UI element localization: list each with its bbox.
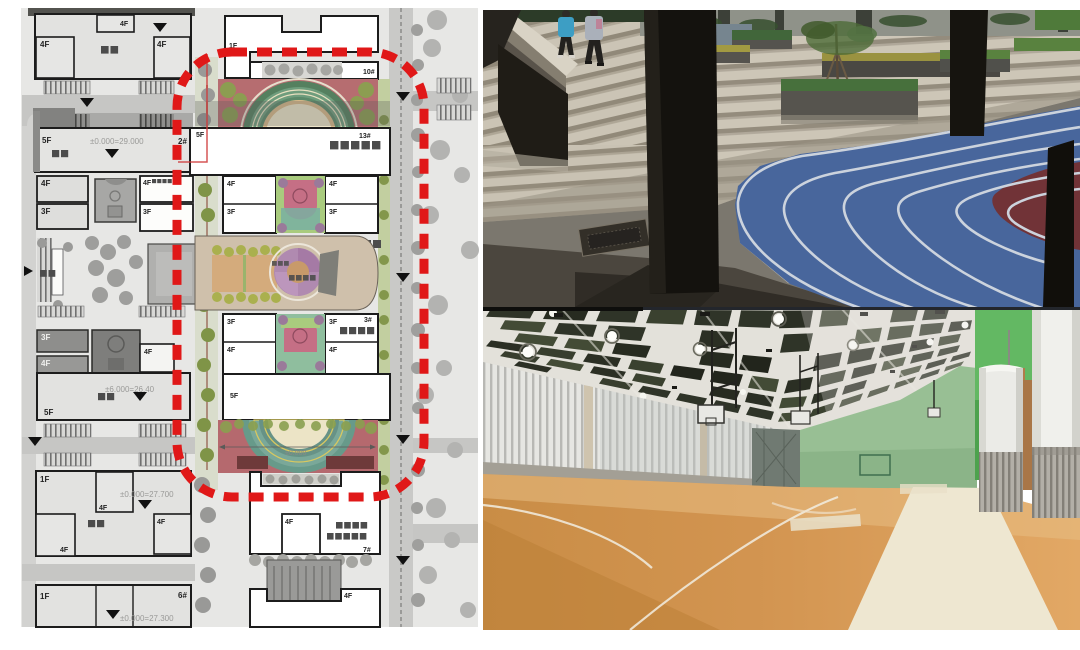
svg-text:±6.000=26.40: ±6.000=26.40 [105, 385, 155, 394]
svg-text:3F: 3F [41, 207, 50, 216]
svg-text:±0.000=27.300: ±0.000=27.300 [120, 614, 174, 623]
svg-text:5F: 5F [44, 408, 53, 417]
svg-text:4F: 4F [99, 505, 108, 512]
svg-text:4F: 4F [344, 593, 353, 600]
svg-text:4F: 4F [40, 40, 49, 49]
svg-text:4F: 4F [157, 40, 166, 49]
svg-text:±0.000: ±0.000 [285, 450, 306, 457]
svg-text:4F: 4F [285, 519, 294, 526]
svg-text:1F: 1F [40, 592, 49, 601]
svg-text:3F: 3F [329, 319, 338, 326]
svg-text:4F: 4F [41, 359, 50, 368]
svg-text:5F: 5F [42, 136, 51, 145]
svg-text:4F: 4F [329, 347, 338, 354]
svg-text:4F: 4F [143, 180, 152, 187]
svg-text:2#: 2# [178, 137, 187, 146]
svg-text:5F: 5F [196, 132, 205, 139]
svg-text:13#: 13# [359, 133, 371, 140]
svg-text:4F: 4F [120, 21, 129, 28]
svg-text:4F: 4F [157, 519, 166, 526]
svg-text:1F: 1F [40, 475, 49, 484]
svg-text:3#: 3# [364, 317, 372, 324]
svg-text:3F: 3F [227, 319, 236, 326]
svg-text:±0.000=29.000: ±0.000=29.000 [90, 137, 144, 146]
svg-text:3F: 3F [143, 209, 152, 216]
svg-text:4F: 4F [41, 179, 50, 188]
svg-text:4F: 4F [60, 547, 69, 554]
svg-text:4F: 4F [227, 347, 236, 354]
svg-text:4F: 4F [329, 181, 338, 188]
svg-text:10#: 10# [363, 69, 375, 76]
svg-text:4F: 4F [144, 349, 153, 356]
svg-text:3F: 3F [227, 209, 236, 216]
svg-text:3F: 3F [41, 333, 50, 342]
svg-text:3F: 3F [329, 209, 338, 216]
svg-text:±0.000=27.700: ±0.000=27.700 [120, 490, 174, 499]
svg-text:5F: 5F [230, 393, 239, 400]
svg-text:6#: 6# [178, 591, 187, 600]
svg-text:4F: 4F [227, 181, 236, 188]
svg-text:7#: 7# [363, 547, 371, 554]
